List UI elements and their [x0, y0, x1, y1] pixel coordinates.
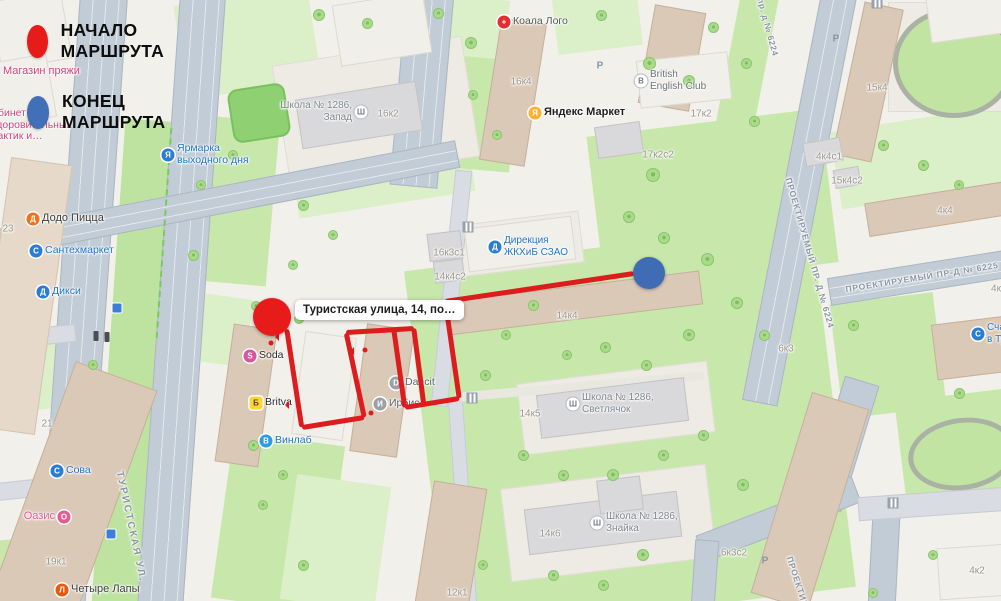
yarmarka-vyhodnogo-dnya-label: Ярмарка выходного дня	[177, 143, 249, 166]
route-line	[285, 329, 304, 428]
route-point-dot	[363, 348, 368, 353]
dodo-pizza-label: Додо Пицца	[42, 213, 104, 225]
route-direction-arrow-icon	[285, 401, 289, 409]
sova-icon[interactable]: С	[51, 465, 64, 478]
route-line	[344, 333, 366, 418]
shkola-1286-zapad-icon[interactable]: Ш	[355, 106, 368, 119]
route-line	[392, 329, 407, 408]
route-point-dot	[269, 341, 274, 346]
koala-logo-label: Коала Лого	[513, 16, 568, 28]
vinlab-label: Винлаб	[275, 435, 312, 447]
dodo-pizza-icon[interactable]: Д	[27, 213, 40, 226]
britva-icon[interactable]: Б	[250, 397, 263, 410]
santehmarket-icon[interactable]: С	[30, 245, 43, 258]
route-end-marker	[633, 257, 665, 289]
schastye-icon[interactable]: С	[972, 328, 985, 341]
irbis-icon[interactable]: И	[374, 398, 387, 411]
legend-item-end: КОНЕЦ МАРШРУТА	[27, 91, 176, 133]
shkola-1286-svetlyachok-label: Школа № 1286, Светлячок	[582, 392, 654, 415]
route-start-marker	[253, 298, 291, 336]
address-tooltip[interactable]: Туристская улица, 14, по…	[295, 300, 464, 320]
address-tooltip-text: Туристская улица, 14, по…	[303, 304, 456, 316]
direkcia-zhkh-label: Дирекция ЖКХиБ СЗАО	[504, 235, 568, 258]
legend-end-label: КОНЕЦ МАРШРУТА	[62, 91, 176, 133]
shkola-1286-svetlyachok-icon[interactable]: Ш	[567, 398, 580, 411]
chetyre-lapy-label: Четыре Лапы	[71, 584, 140, 596]
yandex-market-icon[interactable]: Я	[529, 107, 542, 120]
koala-logo-icon[interactable]: +	[498, 16, 511, 29]
soda-icon[interactable]: S	[244, 350, 257, 363]
sova-label: Сова	[66, 465, 91, 477]
route-line	[445, 271, 635, 303]
legend-start-label: НАЧАЛО МАРШРУТА	[61, 20, 177, 62]
schastye-label: Счастье в Тур…	[987, 322, 1001, 345]
route-direction-arrow-icon	[350, 347, 354, 355]
route-line	[412, 328, 426, 405]
legend-end-marker	[27, 96, 49, 129]
shkola-1286-znaika-icon[interactable]: Ш	[591, 517, 604, 530]
vinlab-icon[interactable]: В	[260, 435, 273, 448]
route-line	[302, 415, 365, 429]
direkcia-zhkh-icon[interactable]: Д	[489, 241, 502, 254]
shkola-1286-zapad-label: Школа № 1286, Запад	[280, 100, 352, 123]
map-canvas[interactable]: PPP232119к116к216к417к217к2с215к44к4с115…	[0, 0, 1001, 601]
yarmarka-vyhodnogo-dnya-icon[interactable]: Я	[162, 149, 175, 162]
route-line	[346, 326, 414, 334]
legend-item-start: НАЧАЛО МАРШРУТА	[27, 20, 176, 62]
route-point-dot	[369, 411, 374, 416]
british-english-club-icon[interactable]: B	[635, 75, 648, 88]
oasis-label: Оазис	[24, 511, 55, 523]
chetyre-lapy-icon[interactable]: Л	[56, 584, 69, 597]
british-english-club-label: British English Club	[650, 69, 706, 92]
diksi-icon[interactable]: Д	[37, 286, 50, 299]
magazin-pryazhi-label: Магазин пряжи	[3, 66, 80, 78]
shkola-1286-znaika-label: Школа № 1286, Знайка	[606, 511, 678, 534]
soda-label: Soda	[259, 350, 284, 362]
santehmarket-label: Сантехмаркет	[45, 245, 114, 257]
oasis-icon[interactable]: О	[58, 511, 71, 524]
yandex-market-label: Яндекс Маркет	[544, 107, 625, 119]
diksi-label: Дикси	[52, 286, 81, 298]
legend-start-marker	[27, 25, 48, 58]
